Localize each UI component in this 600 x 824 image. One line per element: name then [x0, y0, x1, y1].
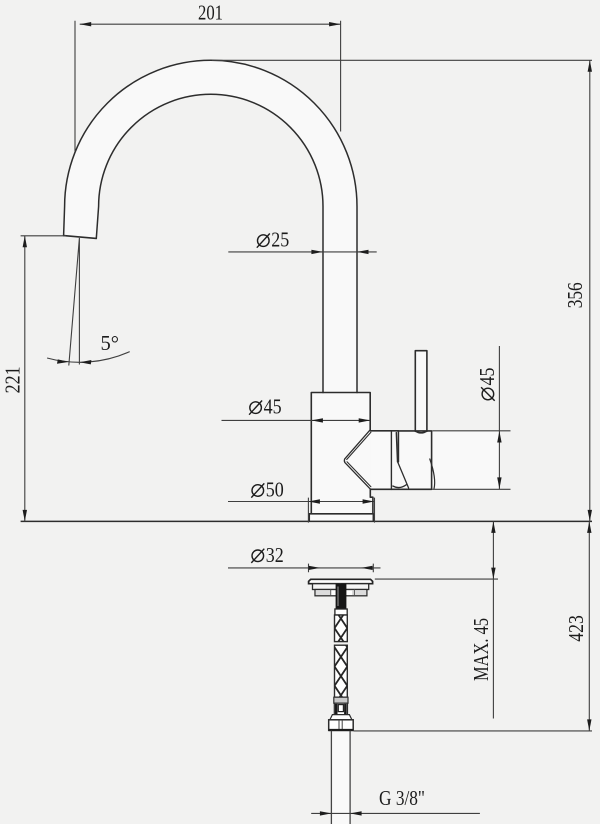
svg-text:G 3/8": G 3/8" [379, 786, 425, 810]
svg-text:50: 50 [266, 478, 284, 502]
svg-text:45: 45 [475, 368, 499, 386]
svg-text:5°: 5° [101, 331, 120, 355]
svg-text:45: 45 [264, 395, 282, 419]
svg-text:423: 423 [564, 615, 588, 642]
svg-text:25: 25 [271, 228, 289, 252]
svg-text:356: 356 [563, 282, 587, 308]
svg-text:201: 201 [198, 0, 223, 24]
svg-text:MAX. 45: MAX. 45 [469, 618, 493, 681]
svg-text:221: 221 [1, 366, 25, 393]
svg-text:32: 32 [266, 543, 284, 567]
